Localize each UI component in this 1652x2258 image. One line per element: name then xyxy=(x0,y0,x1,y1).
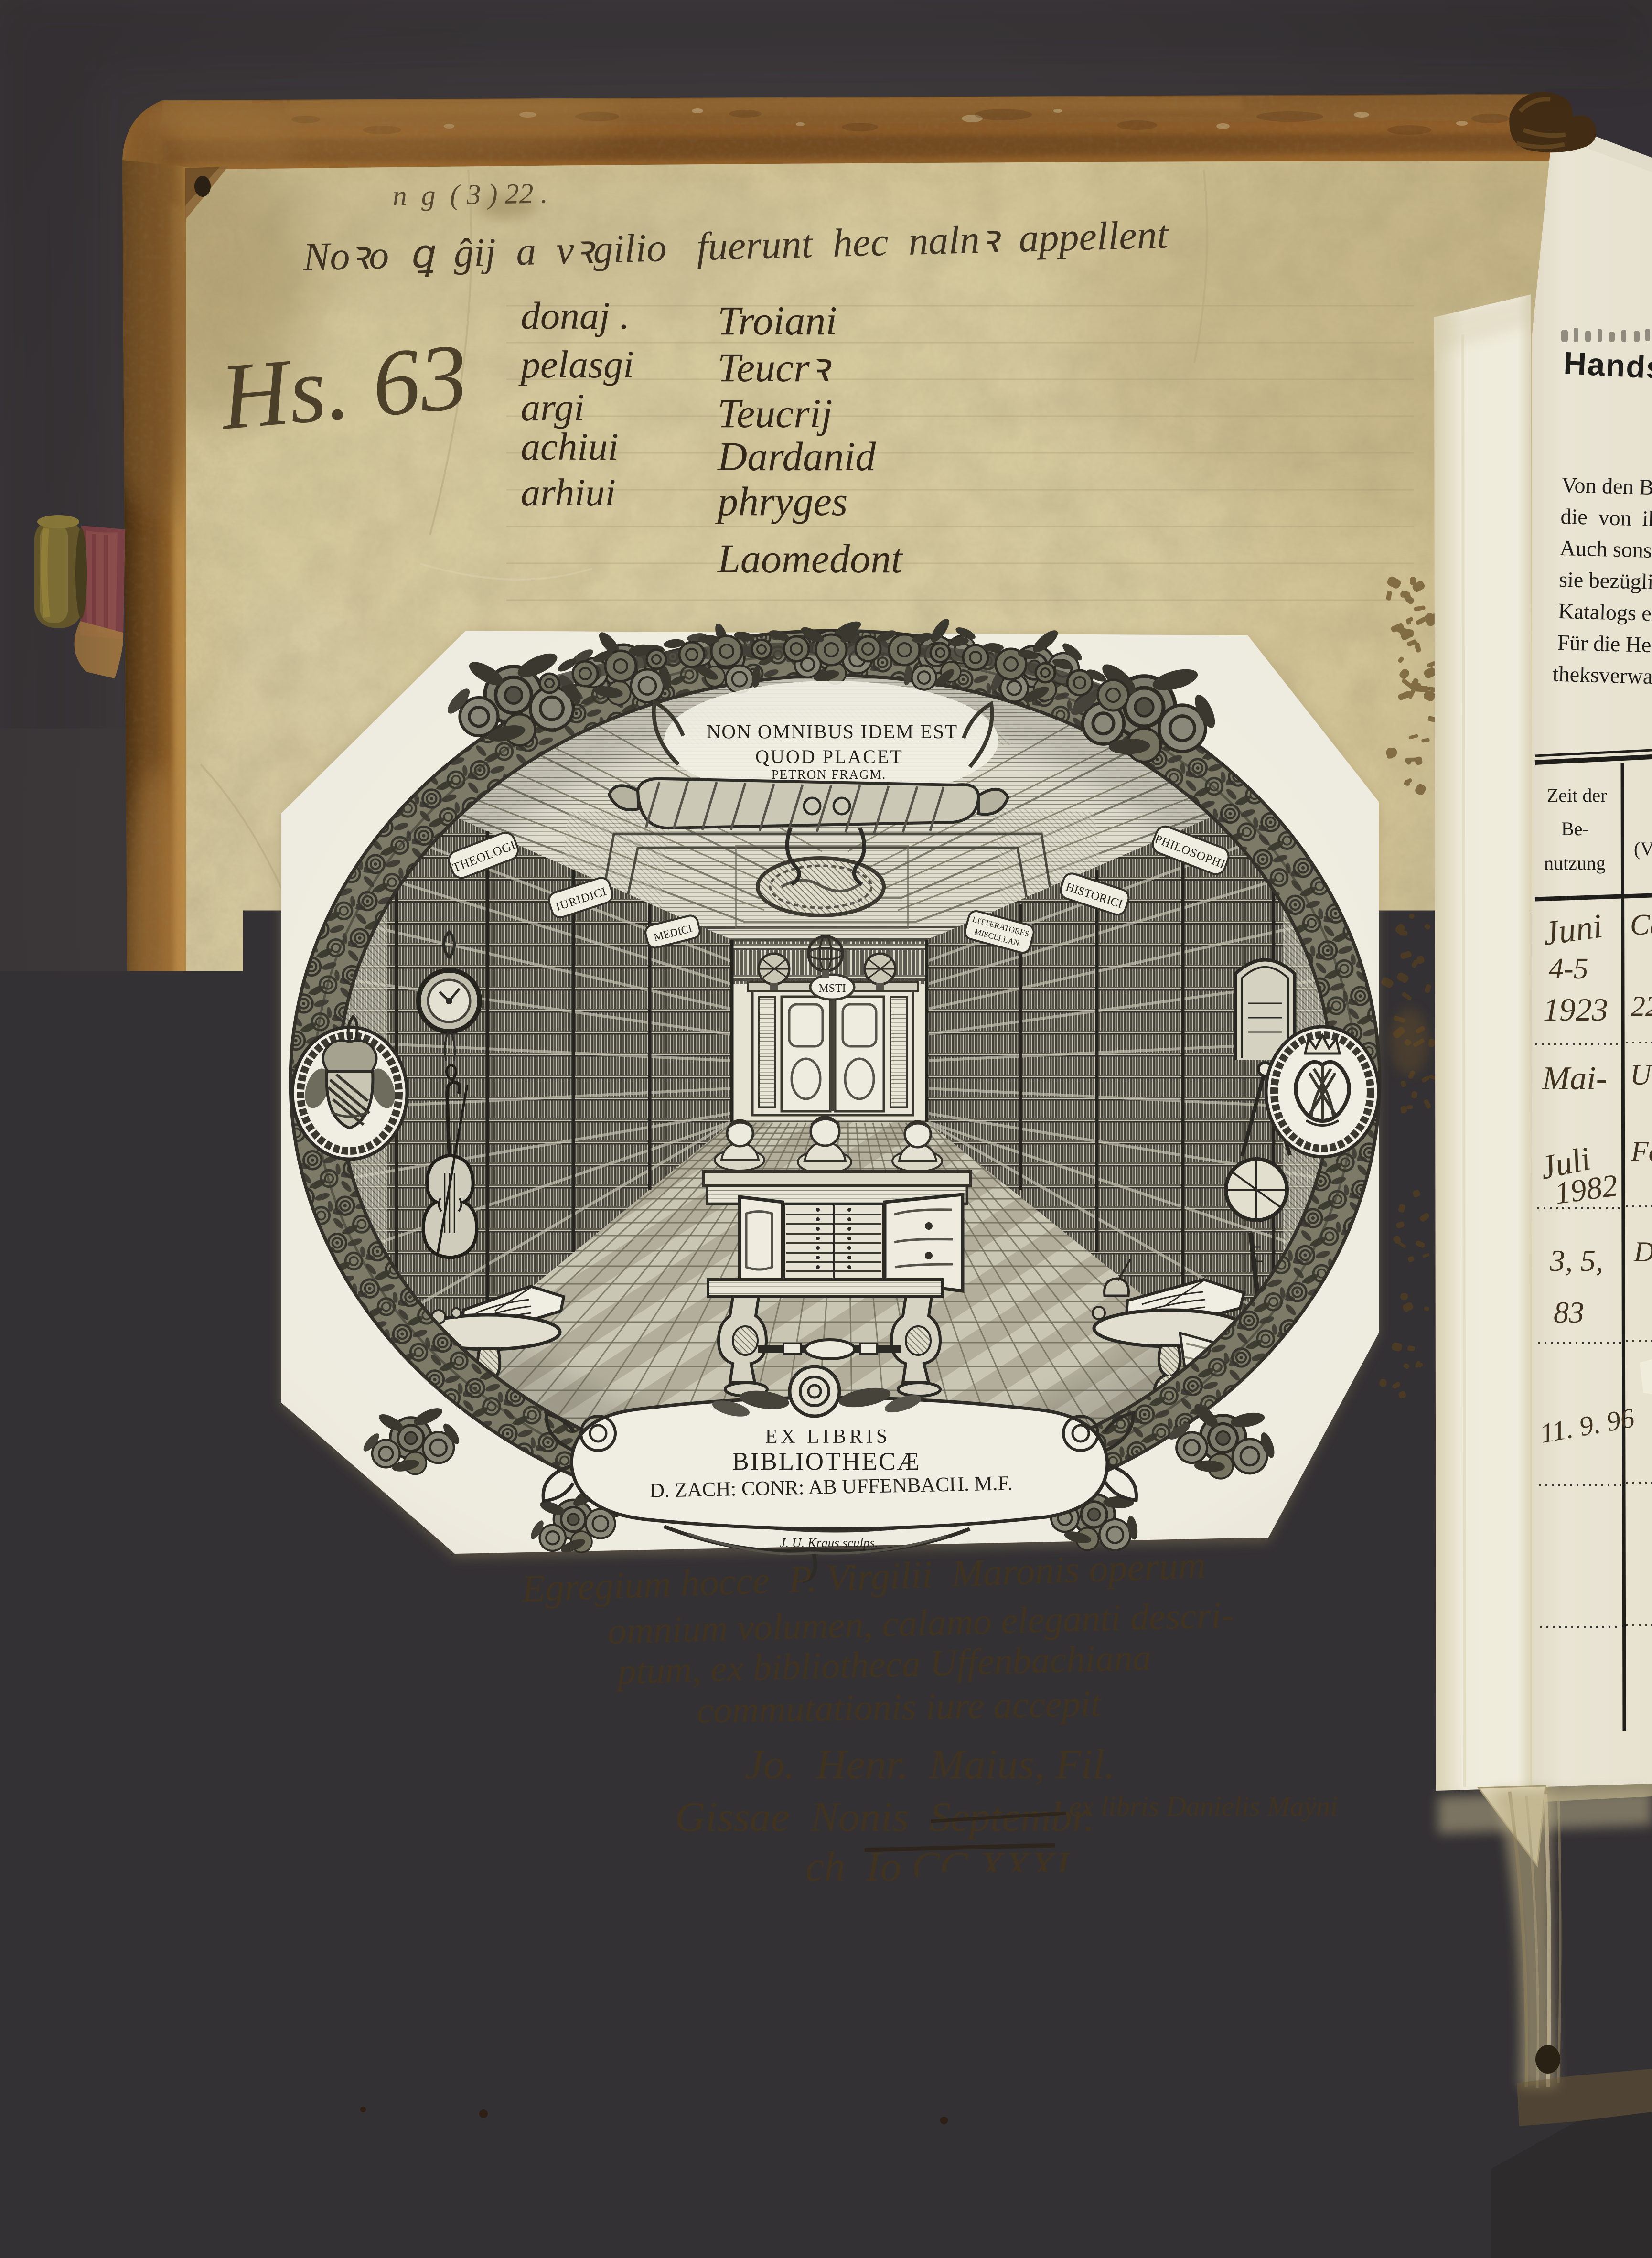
svg-text:(Vo: (Vo xyxy=(1634,838,1652,860)
svg-text:die von ih: die von ih xyxy=(1560,504,1652,531)
svg-text:achiui: achiui xyxy=(521,425,619,468)
svg-text:argi: argi xyxy=(521,386,585,429)
svg-text:EX LIBRIS: EX LIBRIS xyxy=(765,1426,891,1448)
svg-text:phryges: phryges xyxy=(715,478,847,524)
svg-text:Jo. Henr. Maius, Fil.: Jo. Henr. Maius, Fil. xyxy=(745,1742,1115,1788)
svg-text:Dardanid: Dardanid xyxy=(717,433,876,479)
svg-text:theksverwal: theksverwal xyxy=(1552,662,1652,689)
svg-text:J. U. Kraus sculps.: J. U. Kraus sculps. xyxy=(780,1536,878,1550)
svg-text:arhiui: arhiui xyxy=(521,471,616,514)
svg-text:Troiani: Troiani xyxy=(718,298,837,344)
svg-text:commutationis iure accepit: commutationis iure accepit xyxy=(697,1682,1103,1731)
svg-text:Von den Be: Von den Be xyxy=(1561,473,1652,500)
svg-text:Katalogs er: Katalogs er xyxy=(1558,599,1652,625)
svg-text:3, 5,: 3, 5, xyxy=(1549,1244,1603,1278)
svg-text:ch Io CC XXXI.: ch Io CC XXXI. xyxy=(805,1844,1080,1890)
svg-text:MSTI: MSTI xyxy=(818,982,846,995)
svg-text:Für die He: Für die He xyxy=(1557,630,1652,657)
svg-text:Laomedont: Laomedont xyxy=(717,536,903,581)
svg-text:Be-: Be- xyxy=(1561,818,1589,839)
svg-text:Juni: Juni xyxy=(1541,906,1605,952)
svg-text:Zeit der: Zeit der xyxy=(1547,785,1607,806)
svg-text:Hs. 63: Hs. 63 xyxy=(215,324,472,450)
svg-text:U: U xyxy=(1630,1059,1652,1091)
svg-text:1923: 1923 xyxy=(1543,991,1608,1028)
svg-text:Auch sonsti: Auch sonsti xyxy=(1559,536,1652,563)
svg-text:Teucrꝛ: Teucrꝛ xyxy=(718,344,832,390)
svg-text:QUOD PLACET: QUOD PLACET xyxy=(755,746,903,767)
svg-text:4-5: 4-5 xyxy=(1549,953,1588,985)
svg-text:Mai-: Mai- xyxy=(1542,1060,1607,1097)
svg-text:ex libris Danielis Maÿni: ex libris Danielis Maÿni xyxy=(1069,1791,1338,1822)
svg-text:pelasgi: pelasgi xyxy=(518,343,634,386)
svg-text:Teucrij: Teucrij xyxy=(718,390,833,436)
svg-text:83: 83 xyxy=(1554,1295,1584,1329)
svg-text:NON OMNIBUS IDEM EST: NON OMNIBUS IDEM EST xyxy=(707,720,958,742)
svg-text:BIBLIOTHECÆ: BIBLIOTHECÆ xyxy=(732,1448,921,1475)
svg-text:n g ( 3 ) 22 .: n g ( 3 ) 22 . xyxy=(392,177,548,212)
svg-text:donaj .: donaj . xyxy=(521,294,630,337)
svg-text:PETRON FRAGM.: PETRON FRAGM. xyxy=(772,767,887,782)
svg-text:sie bezüglic: sie bezüglic xyxy=(1559,567,1652,594)
svg-text:D: D xyxy=(1633,1236,1652,1268)
svg-text:Fe: Fe xyxy=(1631,1136,1652,1167)
svg-text:nutzung: nutzung xyxy=(1544,852,1606,874)
svg-text:22: 22 xyxy=(1631,990,1652,1022)
svg-text:Gissae Nonis Septembr.: Gissae Nonis Septembr. xyxy=(675,1794,1094,1840)
svg-text:Ca: Ca xyxy=(1630,909,1652,941)
